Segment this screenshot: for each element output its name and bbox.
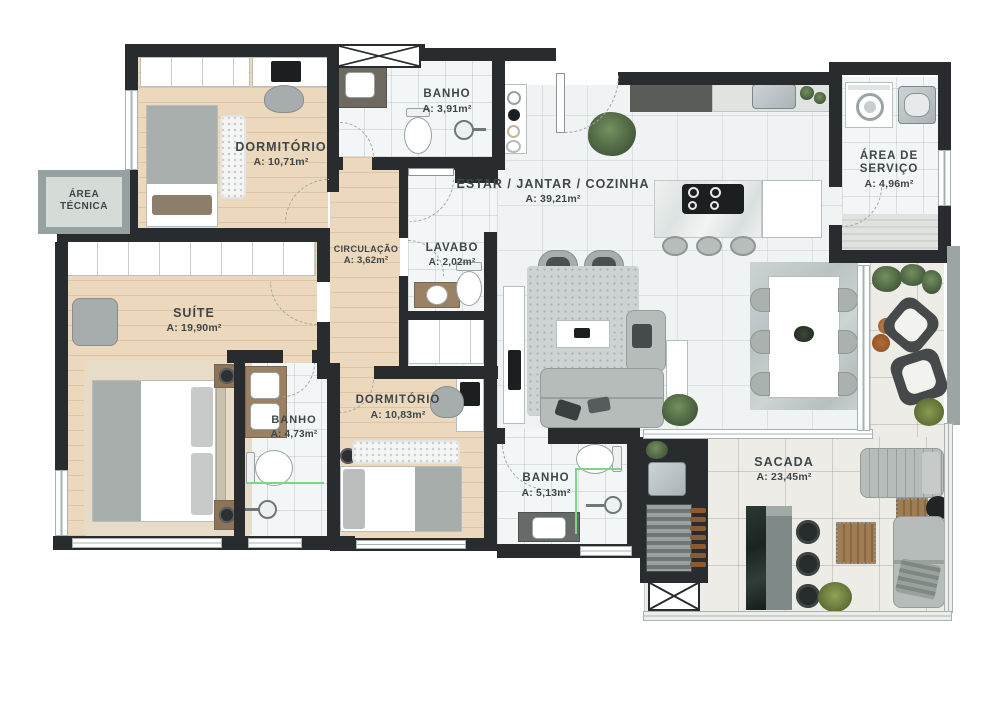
bar-counter-cap [766, 506, 792, 516]
dining-chair [750, 372, 770, 396]
bed-pillow [152, 195, 212, 215]
room-name: ÁREA DE SERVIÇO [845, 150, 933, 176]
dining-chair [750, 330, 770, 354]
tank-basin [904, 93, 930, 117]
wall [618, 72, 840, 85]
toilet-tank [246, 452, 255, 484]
centerpiece-icon [794, 326, 814, 342]
room-name: BANHO [521, 472, 570, 485]
wall [829, 62, 951, 75]
balcony-pillar [947, 246, 960, 425]
wall [497, 428, 505, 444]
bed-pillow [191, 387, 213, 447]
bed-blanket [415, 467, 461, 531]
glass-partition [575, 468, 577, 534]
single-bed [340, 466, 462, 532]
window [580, 546, 632, 556]
kitchen-cabinets [630, 81, 712, 112]
decor-icon [506, 140, 521, 153]
burner-icon [710, 187, 721, 198]
glass-partition [246, 482, 324, 484]
room-area: A: 23,45m² [754, 471, 813, 483]
room-label-banho-3: BANHO A: 5,13m² [521, 472, 570, 499]
skewer-handle [690, 526, 706, 531]
room-name: CIRCULAÇÃO [334, 244, 399, 254]
side-table [666, 340, 688, 398]
elevator-shaft-icon [648, 581, 700, 611]
room-label-banho-2: BANHO A: 4,73m² [271, 414, 318, 440]
skewer-handle [690, 535, 706, 540]
wall [492, 61, 505, 170]
room-label-banho-1: BANHO A: 3,91m² [422, 88, 471, 115]
room-label-sacada: SACADA A: 23,45m² [754, 455, 813, 483]
room-area: A: 2,02m² [426, 257, 479, 269]
wall [829, 250, 951, 263]
room-area: A: 10,71m² [235, 156, 326, 168]
plant-icon [914, 398, 944, 426]
bar-stool [696, 236, 722, 256]
room-area: A: 3,62m² [334, 256, 399, 267]
wall [374, 366, 498, 379]
suite-double-bed [92, 380, 216, 522]
glass-partition [575, 468, 621, 470]
window [125, 90, 138, 170]
grill-rack-icon [646, 504, 692, 572]
room-area: A: 3,91m² [422, 103, 471, 115]
room-label-tecnica: ÁREA TÉCNICA [53, 189, 115, 212]
wall [327, 363, 340, 538]
room-label-dormitorio-1: DORMITÓRIO A: 10,71m² [235, 140, 326, 168]
wall [327, 57, 339, 192]
room-label-circulacao: CIRCULAÇÃO A: 3,62m² [334, 244, 399, 267]
plant-icon [646, 441, 668, 459]
toilet-icon [456, 271, 482, 306]
wall [330, 366, 340, 379]
balcony-railing [944, 423, 953, 613]
wall [317, 242, 330, 282]
apartment-floor-plan: DORMITÓRIO A: 10,71m² BANHO A: 3,91m² ES… [0, 0, 1000, 706]
room-label-lavabo: LAVABO A: 2,02m² [426, 242, 479, 269]
skewer-handle [690, 544, 706, 549]
room-area: A: 19,90m² [166, 322, 221, 334]
room-label-estar: ESTAR / JANTAR / COZINHA A: 39,21m² [457, 177, 650, 205]
cooktop-icon [682, 184, 744, 214]
room-circulacao-floor [330, 157, 400, 379]
room-name: SUÍTE [166, 306, 221, 320]
lamp-icon [219, 368, 235, 384]
bar-stool [662, 236, 688, 256]
wall [408, 311, 484, 320]
entry-door [556, 73, 565, 133]
wall [337, 157, 343, 170]
room-name: SACADA [754, 455, 813, 469]
shower-arm [586, 504, 604, 507]
window [248, 538, 302, 548]
shower-head-icon [604, 496, 622, 514]
tv-icon [508, 350, 521, 390]
skewer-handle [690, 553, 706, 558]
room-area: A: 4,96m² [845, 178, 933, 190]
room-name: DORMITÓRIO [235, 140, 326, 154]
washer-door [864, 101, 876, 113]
lamp-icon [219, 507, 235, 523]
room-area: A: 10,83m² [356, 409, 441, 421]
wall [829, 225, 842, 250]
wicker-coffee-table [836, 522, 876, 564]
decor-icon [508, 109, 520, 121]
wall [420, 48, 556, 61]
window [55, 470, 68, 536]
room-label-suite: SUÍTE A: 19,90m² [166, 306, 221, 334]
decor-icon [507, 91, 521, 105]
skewer-handle [690, 562, 706, 567]
room-label-servico: ÁREA DE SERVIÇO A: 4,96m² [845, 150, 933, 191]
bar-counter [766, 506, 792, 610]
laundry-tank-icon [898, 86, 936, 124]
wall [548, 428, 640, 444]
bar-stool [730, 236, 756, 256]
burner-icon [710, 201, 719, 210]
skewer-handle [690, 508, 706, 513]
plant-icon [814, 92, 826, 104]
toilet-icon [404, 117, 432, 154]
wall [399, 276, 408, 366]
bed-blanket [93, 381, 141, 521]
wall [234, 363, 245, 536]
plant-icon [818, 582, 852, 612]
shower-head-icon [454, 120, 474, 140]
wardrobe [140, 57, 250, 87]
wall [227, 350, 283, 363]
bar-stool [796, 520, 820, 544]
shower-arm [472, 128, 486, 131]
hall-door [408, 168, 454, 176]
burner-icon [688, 201, 697, 210]
room-name: LAVABO [426, 242, 479, 255]
washing-machine-icon [845, 82, 893, 128]
sink-icon [250, 372, 280, 399]
room-name: BANHO [271, 414, 318, 427]
bar-counter-marble [746, 506, 766, 610]
room-name: DORMITÓRIO [356, 394, 441, 407]
closet-strip [408, 318, 484, 364]
decor-icon [574, 328, 590, 338]
plant-icon [872, 266, 902, 292]
glass-wall [857, 265, 870, 431]
sink-icon [345, 72, 375, 98]
suite-wardrobe [66, 240, 316, 276]
wall [312, 350, 330, 363]
wall [484, 232, 497, 538]
dining-chair [750, 288, 770, 312]
room-name: ÁREA TÉCNICA [53, 189, 115, 212]
grill-sink-icon [648, 462, 686, 496]
room-area: A: 39,21m² [457, 193, 650, 205]
plant-icon [922, 270, 942, 294]
chair-cushion [891, 305, 930, 344]
terracotta-pot-icon [872, 334, 890, 352]
wall [399, 170, 408, 238]
bed-blanket [147, 106, 217, 184]
duct-shaft-icon [337, 44, 421, 68]
suite-bench [72, 298, 118, 346]
kitchen-sink-icon [752, 84, 796, 109]
desk-chair [264, 85, 304, 113]
toilet-icon [255, 450, 293, 486]
sink-icon [426, 285, 448, 305]
room-name: BANHO [422, 88, 471, 101]
window [938, 150, 951, 206]
bedside-rug [352, 440, 460, 464]
plant-icon [800, 86, 814, 100]
room-area: A: 4,73m² [271, 429, 318, 441]
decor-icon [507, 125, 520, 138]
room-label-dormitorio-2: DORMITÓRIO A: 10,83m² [356, 394, 441, 421]
sofa-pillow [632, 324, 652, 348]
bed-pillow [191, 453, 213, 515]
skewer-handle [690, 517, 706, 522]
washer-panel [848, 85, 890, 90]
bed-pillow [343, 469, 365, 529]
kitchen-island-extension [762, 180, 822, 238]
laptop-icon [271, 61, 301, 82]
plant-icon [662, 394, 698, 426]
wall [829, 75, 842, 187]
lounge-cushion [922, 452, 940, 494]
bar-stool [796, 552, 820, 576]
sliding-glass-door [643, 429, 873, 439]
bar-stool [796, 584, 820, 608]
single-bed [146, 105, 218, 227]
window [72, 538, 222, 548]
room-name: ESTAR / JANTAR / COZINHA [457, 177, 650, 191]
chair-cushion [900, 358, 938, 396]
window [356, 540, 466, 549]
balcony-railing [643, 611, 952, 621]
room-area: A: 5,13m² [521, 487, 570, 499]
burner-icon [688, 187, 699, 198]
sink-icon [532, 517, 566, 539]
shower-head-icon [258, 500, 277, 519]
